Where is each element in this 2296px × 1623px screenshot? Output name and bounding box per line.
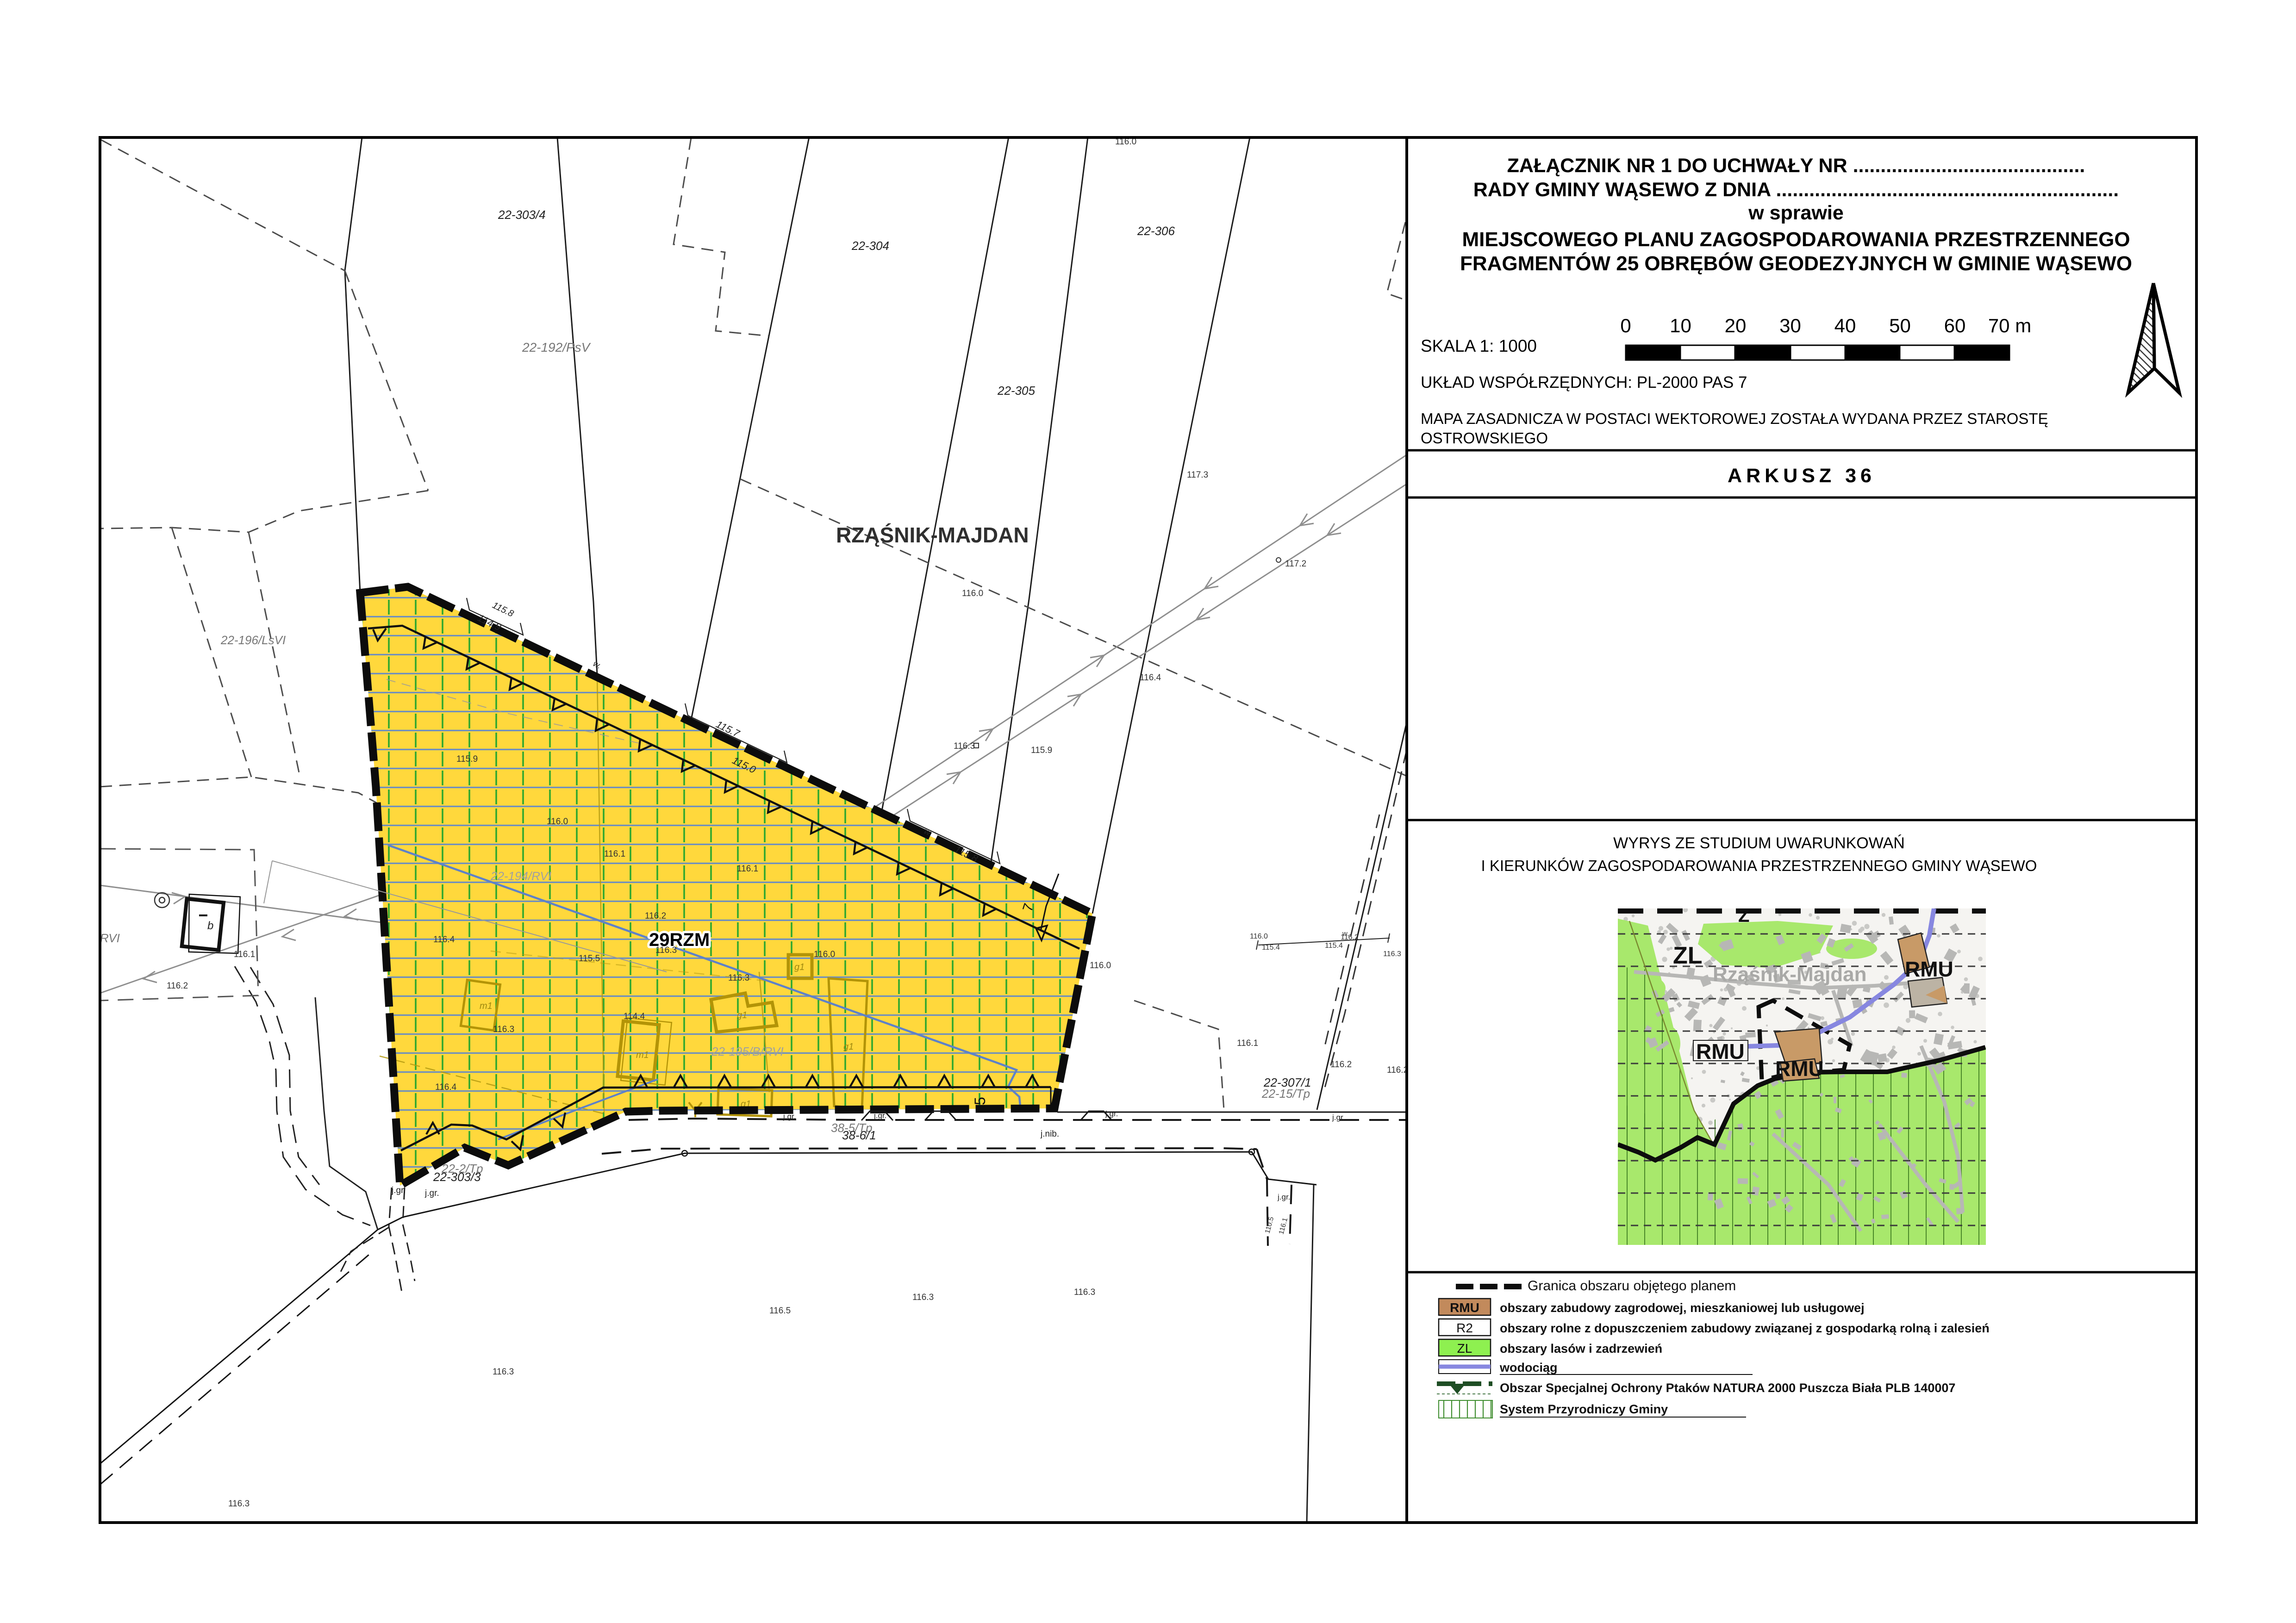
svg-text:j.gr.: j.gr. — [391, 1186, 406, 1195]
svg-text:116.3: 116.3 — [1383, 950, 1401, 958]
svg-text:116.2: 116.2 — [1330, 1060, 1352, 1070]
svg-text:116.3: 116.3 — [728, 973, 749, 983]
svg-text:116.2: 116.2 — [645, 911, 666, 921]
svg-text:5: 5 — [972, 1097, 988, 1105]
svg-text:22-306: 22-306 — [1137, 224, 1175, 238]
svg-text:10: 10 — [1670, 315, 1691, 336]
svg-text:FRAGMENTÓW 25 OBRĘBÓW GEODEZYJ: FRAGMENTÓW 25 OBRĘBÓW GEODEZYJNYCH W GMI… — [1460, 252, 2132, 275]
svg-text:116.1: 116.1 — [234, 950, 255, 959]
svg-text:WYRYS ZE STUDIUM UWARUNKOWAŃ: WYRYS ZE STUDIUM UWARUNKOWAŃ — [1613, 834, 1905, 852]
svg-text:j.gr.: j.gr. — [424, 1188, 439, 1198]
svg-text:30: 30 — [1779, 315, 1801, 336]
svg-text:116.0: 116.0 — [547, 817, 568, 827]
svg-text:obszary rolne z dopuszczeniem: obszary rolne z dopuszczeniem zabudowy z… — [1500, 1321, 1990, 1335]
svg-text:ZL: ZL — [1457, 1341, 1472, 1356]
svg-text:SKALA 1: 1000: SKALA 1: 1000 — [1421, 336, 1537, 355]
svg-text:RMU: RMU — [1696, 1039, 1745, 1063]
svg-text:22-303/4: 22-303/4 — [498, 208, 546, 222]
svg-text:116.3: 116.3 — [493, 1025, 514, 1034]
svg-text:j.gr.: j.gr. — [1105, 1109, 1118, 1118]
svg-text:70 m: 70 m — [1988, 315, 2031, 336]
svg-text:116.0: 116.0 — [814, 950, 835, 959]
svg-text:obszary zabudowy zagrodowej, m: obszary zabudowy zagrodowej, mieszkaniow… — [1500, 1301, 1865, 1315]
svg-text:wodociąg: wodociąg — [1499, 1361, 1558, 1374]
svg-text:116.2: 116.2 — [167, 981, 188, 991]
svg-text:115.9: 115.9 — [456, 754, 478, 764]
svg-text:115.4: 115.4 — [1262, 944, 1280, 951]
svg-text:RMU: RMU — [1775, 1057, 1824, 1081]
svg-text:116.1: 116.1 — [1237, 1038, 1258, 1048]
svg-text:22-195/B/RVI: 22-195/B/RVI — [711, 1045, 784, 1058]
svg-text:Rząśnik-Majdan: Rząśnik-Majdan — [1713, 963, 1867, 986]
svg-text:Obszar Specjalnej Ochrony Ptak: Obszar Specjalnej Ochrony Ptaków NATURA … — [1500, 1381, 1955, 1395]
svg-text:116.3: 116.3 — [912, 1293, 934, 1302]
svg-text:g1: g1 — [794, 962, 805, 972]
svg-text:RMU: RMU — [1450, 1300, 1479, 1315]
svg-text:116.4: 116.4 — [433, 935, 455, 945]
svg-text:Granica obszaru objętego plane: Granica obszaru objętego planem — [1528, 1278, 1736, 1293]
svg-text:115.9: 115.9 — [1031, 746, 1052, 755]
svg-text:OSTROWSKIEGO: OSTROWSKIEGO — [1421, 429, 1548, 447]
svg-text:I KIERUNKÓW ZAGOSPODAROWANIA P: I KIERUNKÓW ZAGOSPODAROWANIA PRZESTRZENN… — [1481, 857, 2037, 874]
svg-text:j.gr.: j.gr. — [873, 1111, 886, 1120]
svg-text:w.: w. — [1342, 930, 1349, 938]
svg-text:116.2: 116.2 — [1387, 1065, 1408, 1075]
svg-text:UKŁAD WSPÓŁRZĘDNYCH: PL-2000 P: UKŁAD WSPÓŁRZĘDNYCH: PL-2000 PAS 7 — [1421, 373, 1747, 392]
svg-text:g1: g1 — [843, 1042, 854, 1052]
svg-text:RZĄŚNIK-MAJDAN: RZĄŚNIK-MAJDAN — [836, 523, 1029, 547]
svg-text:116.0: 116.0 — [962, 589, 983, 598]
svg-text:22-194/RVI: 22-194/RVI — [490, 869, 551, 883]
svg-text:j.gr.: j.gr. — [1332, 1113, 1345, 1122]
svg-text:40: 40 — [1834, 315, 1856, 336]
svg-text:ZL: ZL — [1673, 942, 1703, 969]
svg-text:j.nib.: j.nib. — [1040, 1129, 1059, 1139]
svg-text:RVI: RVI — [100, 931, 120, 945]
svg-text:116.3: 116.3 — [954, 741, 975, 751]
svg-text:116.3: 116.3 — [655, 945, 677, 955]
svg-text:Z: Z — [1738, 906, 1749, 926]
svg-text:22-196/LsVI: 22-196/LsVI — [220, 633, 286, 647]
svg-text:w sprawie: w sprawie — [1748, 202, 1844, 224]
svg-text:22-303/3: 22-303/3 — [433, 1170, 481, 1184]
svg-text:ZAŁĄCZNIK NR 1 DO UCHWAŁY NR .: ZAŁĄCZNIK NR 1 DO UCHWAŁY NR ...........… — [1507, 155, 2085, 177]
svg-text:b: b — [207, 920, 213, 932]
svg-text:117.3: 117.3 — [1187, 470, 1208, 480]
svg-text:MIEJSCOWEGO PLANU ZAGOSPODAROW: MIEJSCOWEGO PLANU ZAGOSPODAROWANIA PRZES… — [1462, 228, 2130, 251]
svg-text:116.3: 116.3 — [1074, 1287, 1095, 1297]
svg-text:m1: m1 — [636, 1050, 649, 1060]
svg-text:g1: g1 — [737, 1010, 747, 1020]
svg-text:22-15/Tp: 22-15/Tp — [1261, 1087, 1310, 1101]
svg-text:22-192/PsV: 22-192/PsV — [522, 340, 591, 354]
svg-text:116.4: 116.4 — [1140, 673, 1161, 683]
svg-text:50: 50 — [1889, 315, 1911, 336]
svg-text:116.3: 116.3 — [493, 1367, 514, 1377]
svg-text:20: 20 — [1725, 315, 1747, 336]
svg-text:116.3: 116.3 — [228, 1499, 250, 1509]
svg-text:60: 60 — [1944, 315, 1966, 336]
svg-text:115.5: 115.5 — [579, 954, 600, 964]
svg-text:RADY GMINY WĄSEWO Z DNIA .....: RADY GMINY WĄSEWO Z DNIA ...............… — [1473, 179, 2119, 201]
svg-text:22-305: 22-305 — [997, 384, 1035, 398]
svg-text:j.gr.: j.gr. — [1277, 1193, 1290, 1201]
svg-text:116.1: 116.1 — [737, 864, 758, 874]
svg-text:RMU: RMU — [1905, 957, 1953, 981]
svg-text:116.4: 116.4 — [435, 1082, 457, 1092]
svg-text:114.4: 114.4 — [624, 1012, 645, 1021]
svg-text:117.2: 117.2 — [1285, 559, 1306, 569]
svg-text:38-6/1: 38-6/1 — [842, 1128, 876, 1142]
svg-text:116.5: 116.5 — [769, 1306, 791, 1316]
svg-text:R2: R2 — [1456, 1321, 1473, 1335]
svg-text:System Przyrodniczy Gminy: System Przyrodniczy Gminy — [1500, 1402, 1668, 1416]
svg-text:obszary lasów i zadrzewień: obszary lasów i zadrzewień — [1500, 1342, 1662, 1356]
svg-text:0: 0 — [1620, 315, 1631, 336]
svg-text:MAPA ZASADNICZA W POSTACI WEKT: MAPA ZASADNICZA W POSTACI WEKTOROWEJ ZOS… — [1421, 410, 2048, 427]
svg-text:116.0: 116.0 — [1250, 933, 1268, 940]
svg-text:116.0: 116.0 — [1090, 961, 1111, 970]
svg-text:116.1: 116.1 — [604, 849, 625, 859]
svg-text:115.4: 115.4 — [1325, 942, 1343, 950]
svg-text:m1: m1 — [480, 1001, 493, 1011]
svg-text:ARKUSZ 36: ARKUSZ 36 — [1728, 465, 1876, 487]
svg-text:j.gr.: j.gr. — [783, 1112, 796, 1121]
svg-text:22-304: 22-304 — [851, 239, 889, 253]
